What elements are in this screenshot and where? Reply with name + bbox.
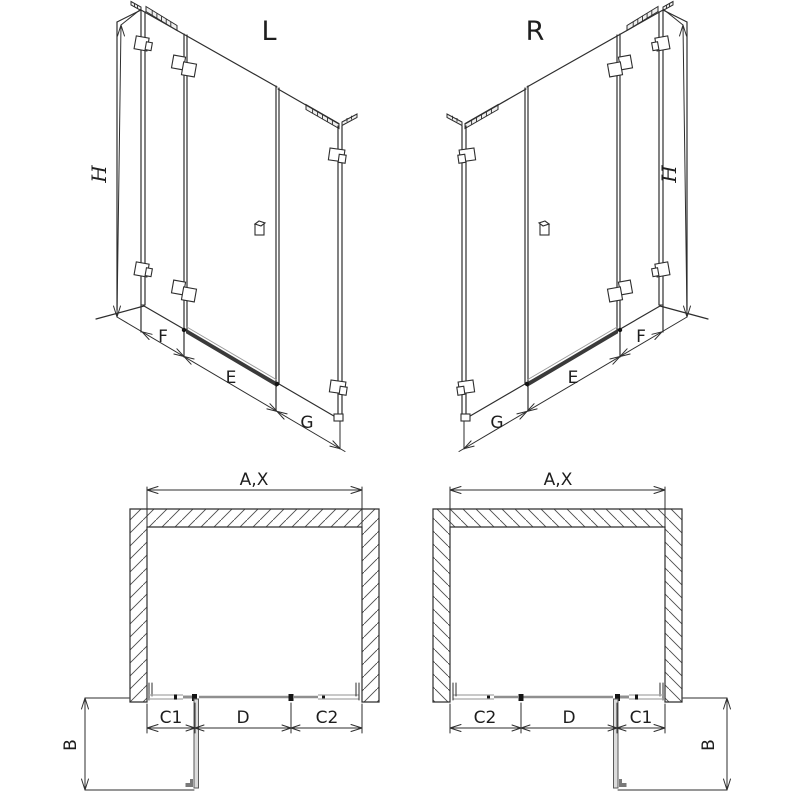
- plan-view-right: [433, 487, 731, 791]
- width-label-e-left: E: [226, 368, 237, 388]
- segment-label-c2-left: C2: [316, 708, 339, 728]
- labels-iso-left: L H F E G: [87, 16, 314, 433]
- segment-label-c1-left: C1: [160, 708, 183, 728]
- depth-label-right: B: [699, 739, 719, 751]
- segment-label-c2-right: C2: [474, 708, 497, 728]
- width-label-e-right: E: [568, 368, 579, 388]
- width-label-g-right: G: [490, 413, 503, 433]
- height-label-left: H: [87, 165, 111, 184]
- plan-width-label-left: A,X: [240, 470, 269, 490]
- variant-label-left: L: [261, 16, 276, 47]
- height-label-right: H: [657, 165, 681, 184]
- width-label-f-left: F: [158, 327, 168, 347]
- depth-label-left: B: [61, 739, 81, 751]
- width-label-g-left: G: [300, 413, 313, 433]
- labels-iso-right: R H G E F: [490, 16, 681, 433]
- plan-view-left: [82, 487, 380, 791]
- segment-label-d-left: D: [236, 708, 249, 728]
- segment-label-c1-right: C1: [630, 708, 653, 728]
- technical-diagram-page: L H F E G R H G E F A,X C1 D C2 B A,X C2…: [0, 0, 800, 800]
- width-label-f-right: F: [636, 327, 646, 347]
- variant-label-right: R: [526, 16, 545, 47]
- shower-enclosure-diagram: L H F E G R H G E F A,X C1 D C2 B A,X C2…: [0, 0, 800, 800]
- segment-label-d-right: D: [562, 708, 575, 728]
- plan-width-label-right: A,X: [544, 470, 573, 490]
